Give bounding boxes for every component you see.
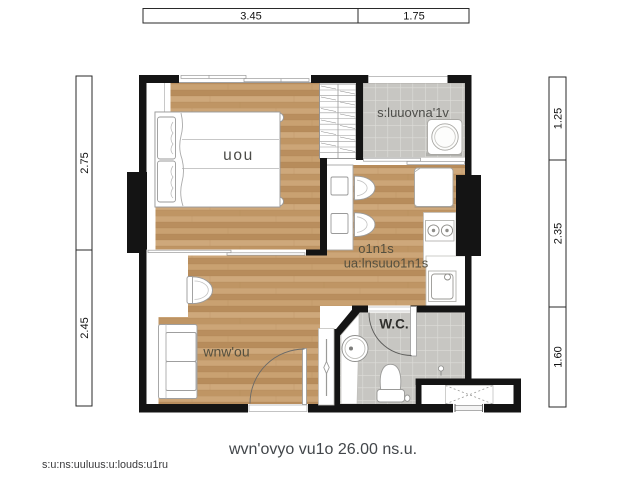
svg-text:2.35: 2.35 bbox=[553, 223, 565, 244]
svg-text:wnw'ou: wnw'ou bbox=[202, 344, 249, 360]
svg-text:ua:lnsuuo1n1s: ua:lnsuuo1n1s bbox=[344, 256, 429, 271]
svg-text:2.75: 2.75 bbox=[79, 152, 91, 173]
svg-text:W.C.: W.C. bbox=[379, 317, 408, 332]
svg-text:1.25: 1.25 bbox=[553, 108, 565, 129]
svg-text:uou: uou bbox=[223, 147, 254, 164]
svg-text:1.75: 1.75 bbox=[403, 11, 424, 23]
svg-text:o1n1s: o1n1s bbox=[358, 241, 394, 256]
svg-text:1.60: 1.60 bbox=[553, 346, 565, 367]
svg-text:s:u:ns:uuluus:u:louds:u1ru: s:u:ns:uuluus:u:louds:u1ru bbox=[42, 459, 168, 471]
svg-text:3.45: 3.45 bbox=[240, 11, 261, 23]
svg-text:wvn'ovyo vu1o 26.00 ns.u.: wvn'ovyo vu1o 26.00 ns.u. bbox=[228, 441, 417, 458]
svg-text:2.45: 2.45 bbox=[79, 317, 91, 338]
svg-text:s:luuovna'1v: s:luuovna'1v bbox=[377, 105, 449, 120]
